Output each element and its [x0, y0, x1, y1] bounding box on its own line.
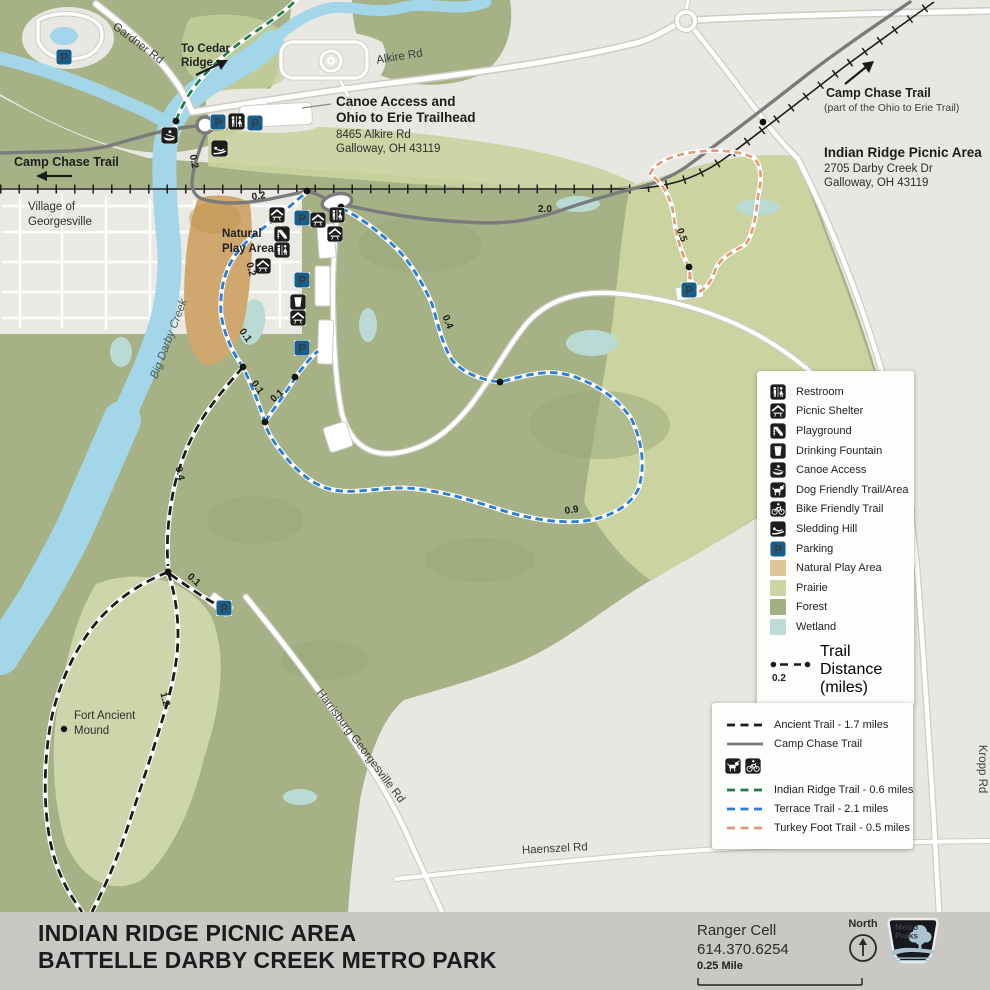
scale-bar-label: 0.25 Mile — [697, 960, 863, 972]
picnic-area-addr-1: 2705 Darby Creek Dr — [824, 163, 933, 175]
bike-friendly-icon — [770, 501, 786, 517]
restroom-icon — [228, 113, 245, 130]
map-title: INDIAN RIDGE PICNIC AREA BATTELLE DARBY … — [38, 920, 497, 974]
legend-row-wetland: Wetland — [770, 617, 906, 637]
restroom-icon — [770, 384, 786, 400]
to-cedar-ridge-label-2: Ridge — [181, 57, 213, 69]
camp-chase-trail-west-label: Camp Chase Trail — [14, 155, 119, 169]
park-map-page: P — [0, 0, 990, 990]
parking-icon — [247, 115, 263, 131]
fort-ancient-mound-label-1: Fort Ancient — [74, 710, 136, 722]
legend-label: Forest — [796, 601, 827, 613]
legend-row-forest: Forest — [770, 598, 906, 618]
ranger-cell-phone: 614.370.6254 — [697, 940, 789, 959]
legend-label: Picnic Shelter — [796, 405, 863, 417]
camp-chase-ne-label-2: (part of the Ohio to Erie Trail) — [824, 102, 959, 114]
camp-chase-trail-sample — [725, 740, 765, 748]
map-title-line1: INDIAN RIDGE PICNIC AREA — [38, 920, 497, 947]
trail-legend-label: Turkey Foot Trail - 0.5 miles — [774, 822, 910, 834]
parking-icon — [294, 340, 310, 356]
north-indicator: North — [840, 918, 886, 970]
legend-row-restroom: Restroom — [770, 382, 906, 402]
legend-row-natural-play-area: Natural Play Area — [770, 558, 906, 578]
scale-bar-line — [697, 977, 863, 987]
picnic-area-title: Indian Ridge Picnic Area — [824, 145, 982, 160]
village-label-2: Georgesville — [28, 216, 92, 228]
legend-label: Wetland — [796, 621, 836, 633]
picnic-area-addr-2: Galloway, OH 43119 — [824, 177, 928, 189]
parking-icon — [216, 600, 232, 616]
scale-bar: 0.25 Mile — [697, 960, 863, 990]
legend-row-trail-distance: 0.2 Trail Distance (miles) — [770, 643, 906, 697]
fort-ancient-mound-label-2: Mound — [74, 725, 109, 737]
wetland-swatch — [770, 619, 786, 635]
legend-row-bike-friendly: Bike Friendly Trail — [770, 500, 906, 520]
legend-row-playground: Playground — [770, 421, 906, 441]
trailhead-addr-2: Galloway, OH 43119 — [336, 143, 440, 155]
title-bar: INDIAN RIDGE PICNIC AREA BATTELLE DARBY … — [0, 912, 990, 990]
trail-distance-value: 0.2 — [770, 674, 812, 683]
legend-row-dog-friendly: Dog Friendly Trail/Area — [770, 480, 906, 500]
metro-parks-logo: Metro Parks — [886, 916, 940, 970]
legend-label: Parking — [796, 543, 833, 555]
legend-row-canoe-access: Canoe Access — [770, 460, 906, 480]
indian-ridge-trail-sample — [725, 786, 765, 794]
camp-chase-allowed-icons — [725, 755, 903, 777]
trailhead-title-1: Canoe Access and — [336, 94, 456, 109]
to-cedar-ridge-label-1: To Cedar — [181, 43, 231, 55]
legend-label: Restroom — [796, 386, 844, 398]
trailhead-title-2: Ohio to Erie Trailhead — [336, 110, 476, 125]
legend-label: Bike Friendly Trail — [796, 503, 883, 515]
playground-icon — [274, 226, 290, 242]
north-arrow-icon — [846, 931, 880, 965]
parking-icon — [770, 541, 786, 557]
trail-distance-symbol — [770, 660, 812, 669]
logo-text-parks: Parks — [895, 931, 918, 941]
ranger-contact: Ranger Cell 614.370.6254 — [697, 921, 789, 959]
legend-row-parking: Parking — [770, 539, 906, 559]
trail-legend-label: Indian Ridge Trail - 0.6 miles — [774, 784, 913, 796]
trail-legend-row-terrace: Terrace Trail - 2.1 miles — [725, 799, 903, 818]
legend-label: Drinking Fountain — [796, 445, 882, 457]
map-title-line2: BATTELLE DARBY CREEK METRO PARK — [38, 947, 497, 974]
trail-legend-label: Terrace Trail - 2.1 miles — [774, 803, 888, 815]
camp-chase-ne-label-1: Camp Chase Trail — [826, 86, 931, 100]
dog-friendly-icon — [770, 482, 786, 498]
picnic-shelter-icon — [310, 212, 326, 228]
trailhead-addr-1: 8465 Alkire Rd — [336, 129, 411, 141]
picnic-shelter-icon — [269, 207, 285, 223]
natural-play-area-swatch — [770, 560, 786, 576]
village-label-1: Village of — [28, 201, 76, 213]
legend-label: Playground — [796, 425, 852, 437]
drinking-fountain-icon — [290, 294, 306, 310]
trail-legend-row-ancient: Ancient Trail - 1.7 miles — [725, 715, 903, 734]
parking-icon — [210, 114, 226, 130]
fort-ancient-mound-dot — [61, 726, 67, 732]
legend-row-drinking-fountain: Drinking Fountain — [770, 441, 906, 461]
map-legend-panel: Restroom Picnic Shelter Playground Drink… — [757, 371, 914, 706]
dog-friendly-icon — [725, 758, 741, 774]
trail-distance-label: 2.0 — [538, 204, 552, 215]
parking-icon — [681, 282, 697, 298]
legend-label: Sledding Hill — [796, 523, 857, 535]
trail-distance-label: 0.2 — [251, 190, 267, 203]
trail-legend-row-indian-ridge: Indian Ridge Trail - 0.6 miles — [725, 780, 903, 799]
trail-legend-label: Camp Chase Trail — [774, 738, 862, 750]
trail-legend-row-camp-chase: Camp Chase Trail — [725, 734, 903, 753]
terrace-trail-sample — [725, 805, 765, 813]
picnic-shelter-icon — [770, 403, 786, 419]
prairie-swatch — [770, 580, 786, 596]
bike-friendly-icon — [745, 758, 761, 774]
canoe-access-icon — [770, 462, 786, 478]
drinking-fountain-icon — [770, 443, 786, 459]
turkey-foot-trail-sample — [725, 824, 765, 832]
north-label: North — [840, 918, 886, 930]
canoe-access-icon — [161, 127, 178, 144]
ranger-cell-label: Ranger Cell — [697, 921, 789, 940]
sledding-hill-icon — [211, 140, 228, 157]
parking-icon — [294, 210, 310, 226]
trail-legend-label: Ancient Trail - 1.7 miles — [774, 719, 888, 731]
restroom-icon — [329, 207, 345, 223]
parking-icon — [56, 49, 72, 65]
natural-play-area-label-1: Natural — [222, 228, 262, 240]
legend-label: Canoe Access — [796, 464, 866, 476]
trail-legend-row-turkey-foot: Turkey Foot Trail - 0.5 miles — [725, 818, 903, 837]
legend-label: Natural Play Area — [796, 562, 882, 574]
legend-label: Trail Distance (miles) — [820, 643, 906, 697]
trail-legend-panel: Ancient Trail - 1.7 miles Camp Chase Tra… — [712, 703, 913, 849]
legend-row-sledding-hill: Sledding Hill — [770, 519, 906, 539]
picnic-shelter-icon — [327, 226, 343, 242]
sledding-hill-icon — [770, 521, 786, 537]
legend-label: Prairie — [796, 582, 828, 594]
trail-distance-label: 0.9 — [564, 504, 580, 517]
picnic-shelter-icon — [290, 310, 306, 326]
legend-label: Dog Friendly Trail/Area — [796, 484, 909, 496]
ancient-trail-sample — [725, 721, 765, 729]
playground-icon — [770, 423, 786, 439]
legend-row-picnic-shelter: Picnic Shelter — [770, 402, 906, 422]
parking-icon — [294, 272, 310, 288]
natural-play-area-label-2: Play Area — [222, 243, 275, 255]
kropp-rd-label: Kropp Rd — [976, 745, 988, 794]
restroom-icon — [274, 242, 290, 258]
legend-row-prairie: Prairie — [770, 578, 906, 598]
forest-swatch — [770, 599, 786, 615]
